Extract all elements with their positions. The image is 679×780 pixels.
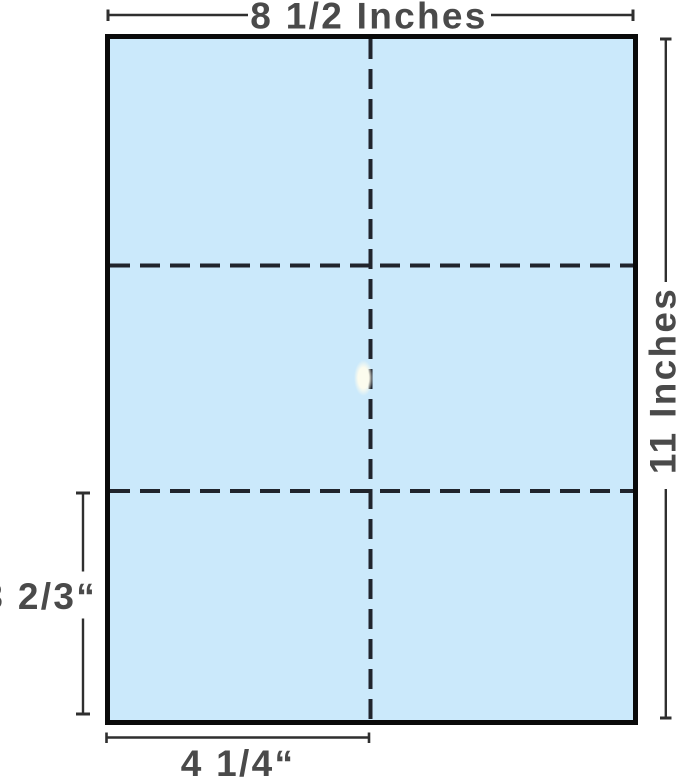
svg-text:3 2/3“: 3 2/3“: [0, 576, 97, 617]
svg-text:8 1/2 Inches: 8 1/2 Inches: [250, 0, 487, 37]
svg-text:4 1/4“: 4 1/4“: [181, 743, 296, 780]
svg-text:11 Inches: 11 Inches: [643, 287, 679, 474]
